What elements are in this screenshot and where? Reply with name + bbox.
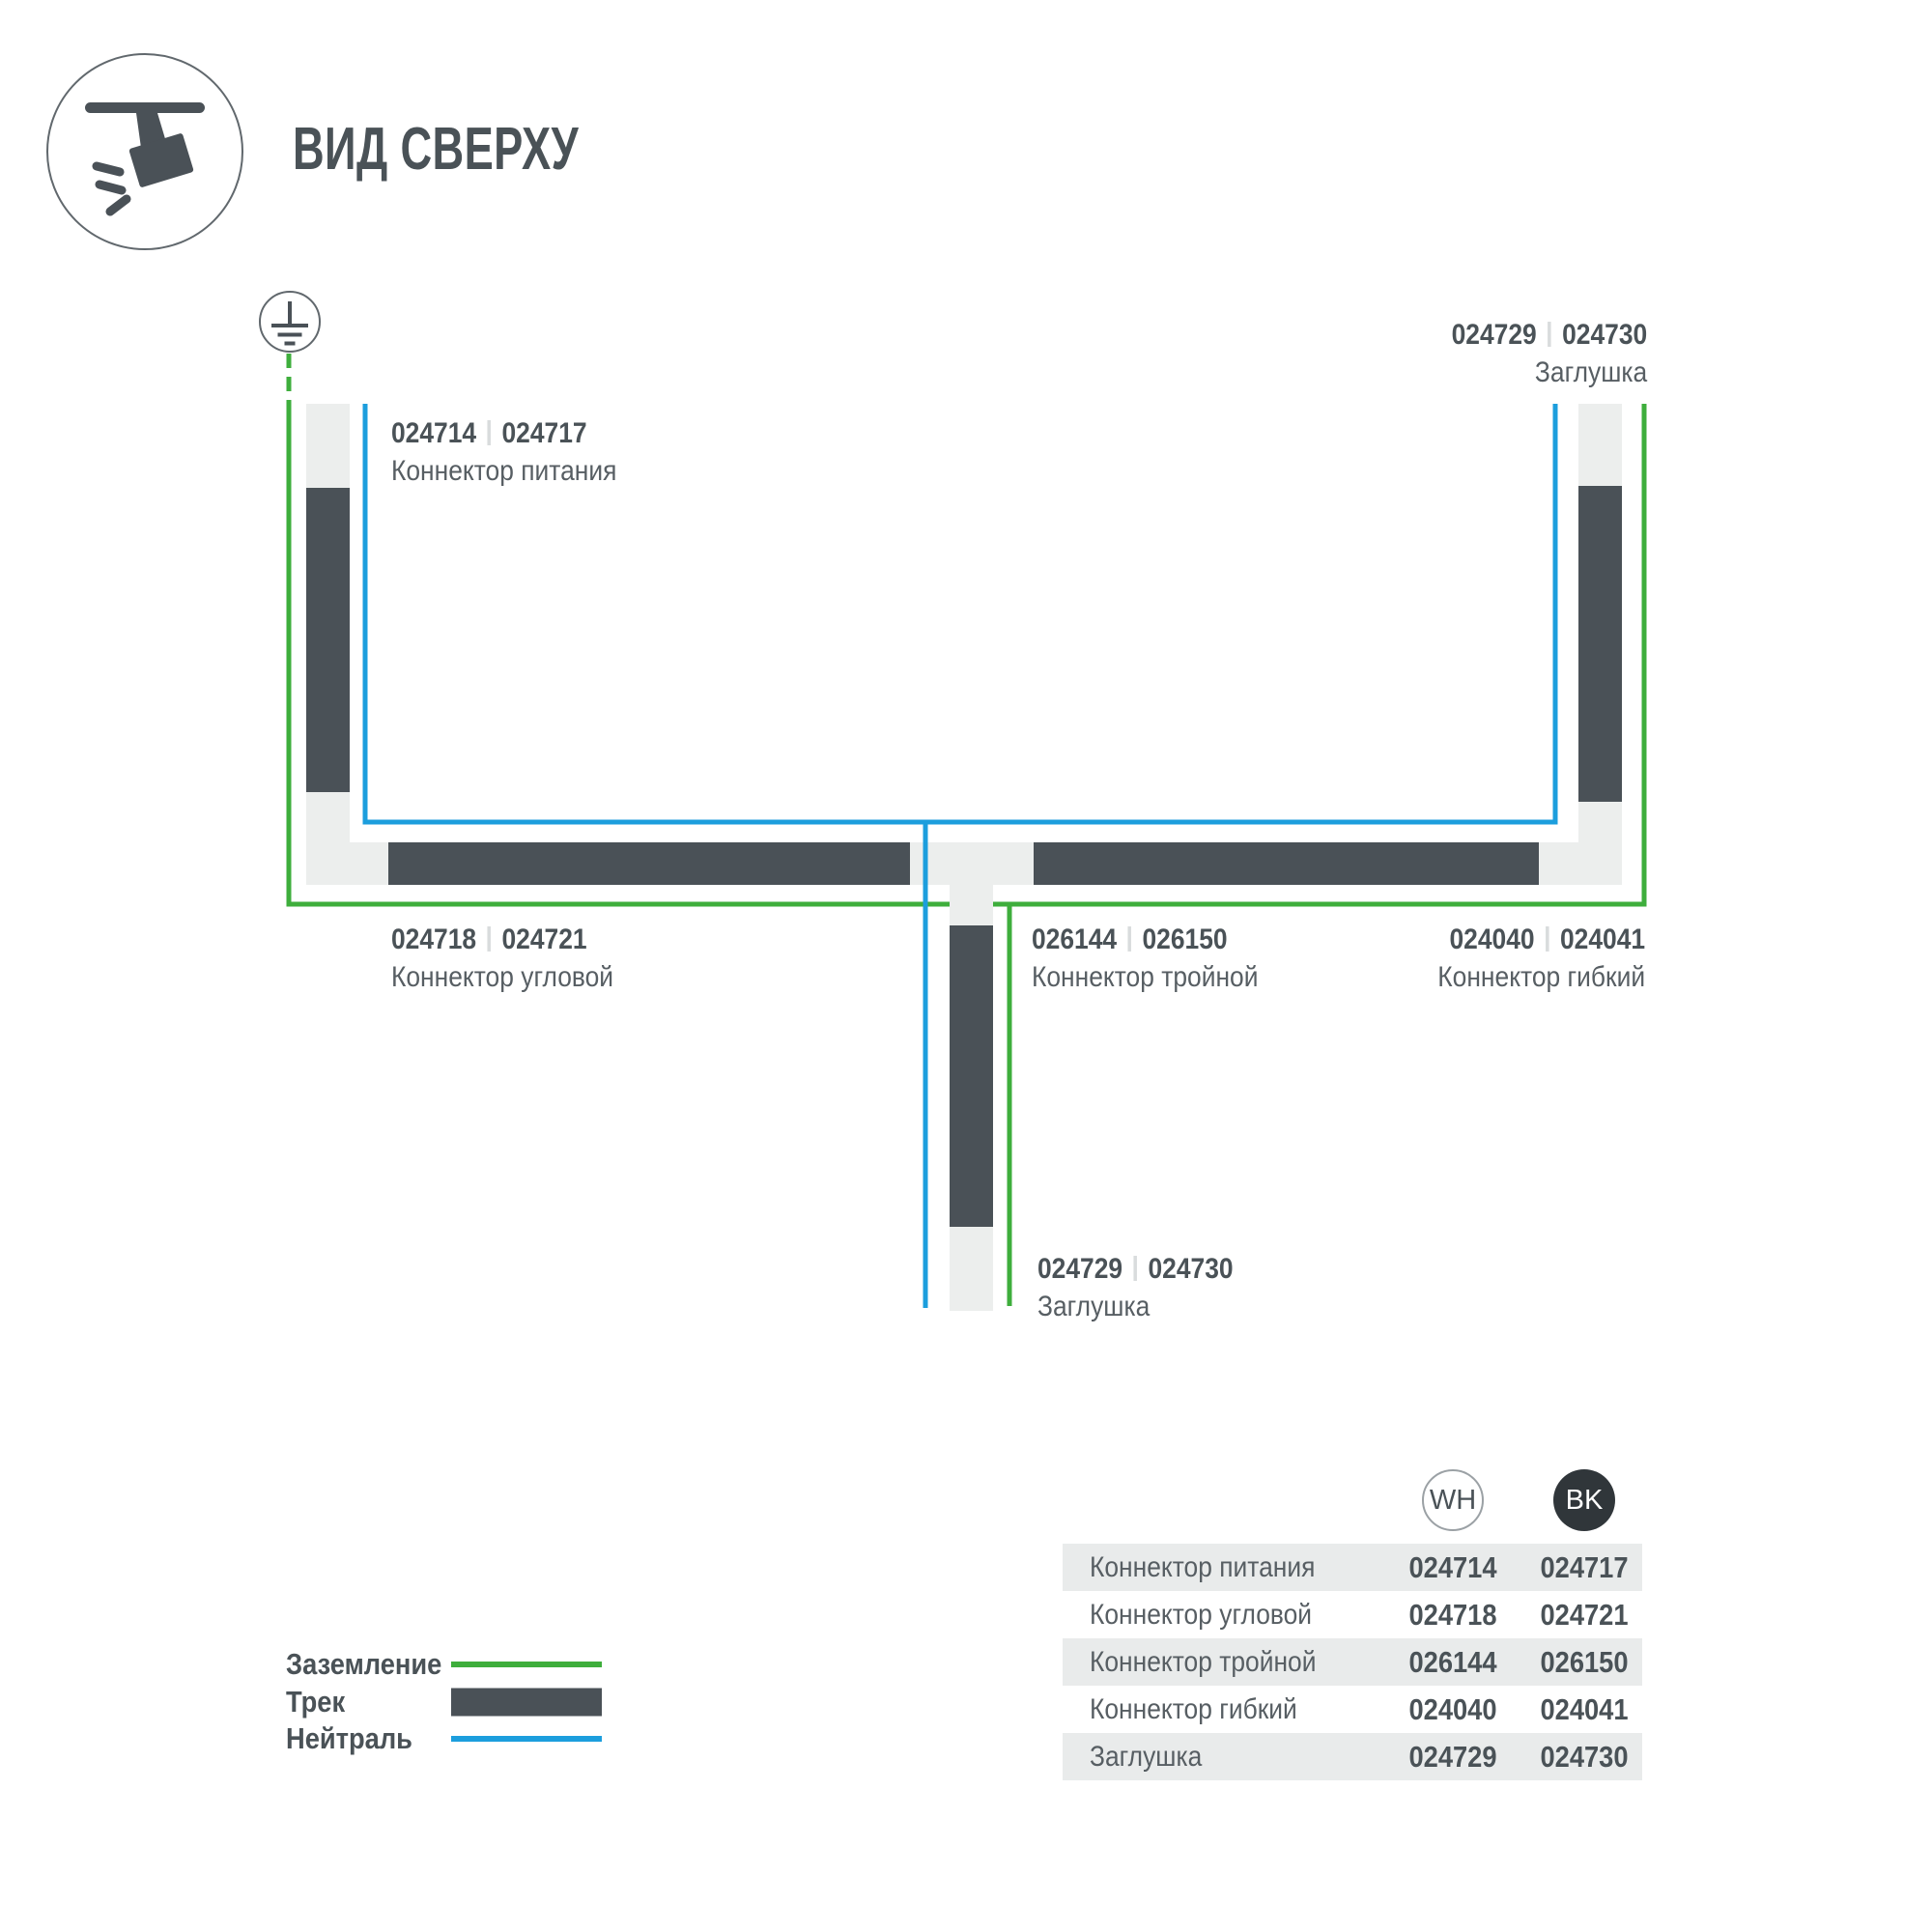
article-codes: 026144026150 [1032, 923, 1258, 956]
column-badge-label: WH [1430, 1485, 1476, 1517]
article-codes: 024714024717 [391, 417, 616, 450]
article-bk: 024041 [1560, 923, 1645, 955]
label-name: Заглушка [1037, 1290, 1234, 1324]
label-corner-connector: 024718024721 Коннектор угловой [391, 923, 643, 995]
article-codes: 024729024730 [1451, 319, 1647, 352]
article-bk: 024730 [1562, 319, 1647, 351]
table-row: Коннектор угловой 024718 024721 [1063, 1591, 1642, 1638]
legend-item-ground: Заземление [286, 1647, 614, 1682]
part-name: Коннектор тройной [1090, 1646, 1316, 1679]
article-bk: 024717 [501, 417, 586, 449]
earth-ground-icon [260, 292, 320, 352]
table-row: Коннектор гибкий 024040 024041 [1063, 1686, 1642, 1733]
separator [1134, 1256, 1138, 1281]
part-code-bk: 024041 [1540, 1692, 1628, 1727]
label-name: Коннектор угловой [391, 960, 613, 995]
label-endcap-top: 024729024730 Заглушка [1425, 319, 1647, 390]
part-name: Заглушка [1090, 1741, 1202, 1774]
article-bk: 024730 [1148, 1253, 1233, 1285]
track-segment-left [306, 488, 350, 792]
article-bk: 026150 [1142, 923, 1227, 955]
track-segment-branch [950, 925, 993, 1227]
article-codes: 024729024730 [1037, 1253, 1234, 1286]
column-badge-black: BK [1553, 1469, 1615, 1531]
part-code-bk: 024730 [1540, 1740, 1628, 1775]
label-flexible-connector: 024040024041 Коннектор гибкий [1409, 923, 1645, 995]
separator [488, 926, 492, 952]
table-row: Коннектор тройной 026144 026150 [1063, 1638, 1642, 1686]
separator [1548, 322, 1551, 347]
track-segment-horizontal-right [1034, 842, 1539, 885]
separator [1546, 926, 1549, 952]
label-name: Заглушка [1451, 355, 1647, 390]
article-wh: 024040 [1449, 923, 1534, 955]
table-row: Заглушка 024729 024730 [1063, 1733, 1642, 1780]
part-code-wh: 024714 [1408, 1550, 1496, 1585]
article-wh: 024718 [391, 923, 476, 955]
track-segment-right [1578, 486, 1622, 802]
ground-line-swatch [451, 1662, 602, 1667]
part-code-bk: 024721 [1540, 1598, 1628, 1633]
legend-item-track: Трек [286, 1685, 614, 1719]
part-name: Коннектор питания [1090, 1551, 1315, 1584]
part-code-bk: 026150 [1540, 1645, 1628, 1680]
track-bar-swatch [451, 1689, 602, 1717]
page: ВИД СВЕРХУ 024714024717 Коннектор питани… [0, 0, 1932, 1932]
part-code-bk: 024717 [1540, 1550, 1628, 1585]
part-code-wh: 024040 [1408, 1692, 1496, 1727]
label-power-connector: 024714024717 Коннектор питания [391, 417, 647, 489]
article-codes: 024040024041 [1437, 923, 1645, 956]
part-code-wh: 024718 [1408, 1598, 1496, 1633]
track-spotlight-icon [47, 54, 242, 249]
part-name: Коннектор гибкий [1090, 1693, 1297, 1726]
separator [488, 420, 492, 445]
track-segment-horizontal-left [388, 842, 910, 885]
neutral-line-swatch [451, 1736, 602, 1742]
article-wh: 024729 [1037, 1253, 1122, 1285]
label-triple-connector: 026144026150 Коннектор тройной [1032, 923, 1289, 995]
part-code-wh: 024729 [1408, 1740, 1496, 1775]
label-endcap-bottom: 024729024730 Заглушка [1037, 1253, 1260, 1324]
article-wh: 026144 [1032, 923, 1117, 955]
part-code-wh: 026144 [1408, 1645, 1496, 1680]
table-row: Коннектор питания 024714 024717 [1063, 1544, 1642, 1591]
article-wh: 024714 [391, 417, 476, 449]
page-title: ВИД СВЕРХУ [293, 120, 579, 180]
table-rows: Коннектор питания 024714 024717 Коннекто… [1063, 1544, 1642, 1780]
legend-item-neutral: Нейтраль [286, 1721, 614, 1756]
legend-label: Нейтраль [286, 1721, 412, 1756]
label-name: Коннектор питания [391, 454, 616, 489]
legend-label: Трек [286, 1685, 345, 1719]
part-name: Коннектор угловой [1090, 1599, 1312, 1632]
column-badge-label: BK [1566, 1485, 1604, 1517]
label-name: Коннектор гибкий [1437, 960, 1645, 995]
article-bk: 024721 [501, 923, 586, 955]
separator [1128, 926, 1132, 952]
legend-label: Заземление [286, 1647, 441, 1682]
label-name: Коннектор тройной [1032, 960, 1258, 995]
article-wh: 024729 [1451, 319, 1536, 351]
article-codes: 024718024721 [391, 923, 613, 956]
column-badge-white: WH [1422, 1469, 1484, 1531]
